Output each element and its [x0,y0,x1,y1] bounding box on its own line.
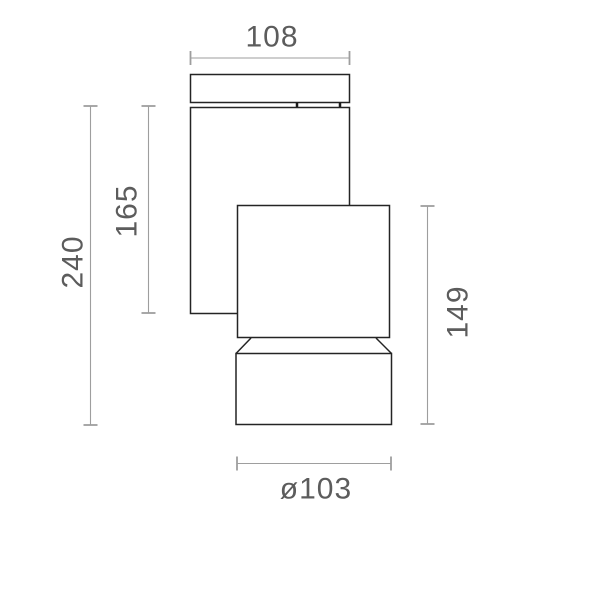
dim-label-head-diameter: ø103 [280,473,352,506]
head-bezel-chamfer-left [236,338,251,354]
dimension-overall-height: 240 [57,106,98,425]
luminaire-dimension-drawing: 108 240 165 149 ø103 [0,0,600,600]
dimension-top-width: 108 [191,21,350,66]
mounting-cap-outline [191,75,350,103]
dim-label-head-height: 149 [442,285,475,338]
head-bezel-chamfer-right [376,338,392,354]
dimension-drawing-canvas: 108 240 165 149 ø103 [0,0,600,600]
dim-label-arm-height: 165 [111,184,144,237]
dimension-head-diameter: ø103 [237,457,391,506]
bezel-outline [236,354,392,425]
dimension-arm-height: 165 [111,106,156,313]
dim-label-top-width: 108 [245,21,298,54]
dimension-head-height: 149 [421,206,475,424]
dim-label-overall-height: 240 [57,235,90,288]
head-outline [238,206,390,338]
